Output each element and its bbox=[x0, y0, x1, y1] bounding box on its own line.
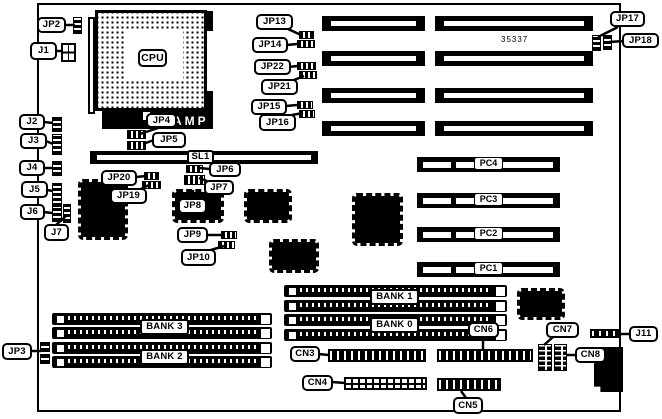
chip-lower-mid bbox=[269, 239, 319, 273]
jp9-jumper bbox=[221, 231, 237, 239]
part-number-text: 35337 bbox=[501, 35, 528, 44]
motherboard-diagram: CPU AMP 35337 PC4 PC3 PC2 bbox=[0, 0, 662, 419]
label-j3: J3 bbox=[20, 133, 47, 149]
label-j6: J6 bbox=[20, 204, 45, 220]
chip-near-bank1 bbox=[517, 288, 565, 320]
label-jp8: JP8 bbox=[178, 198, 207, 214]
cn7-connector bbox=[538, 344, 552, 371]
label-jp13: JP13 bbox=[256, 14, 293, 30]
label-cn4: CN4 bbox=[302, 375, 333, 391]
label-jp15: JP15 bbox=[251, 99, 287, 115]
label-bank2: BANK 2 bbox=[140, 349, 189, 365]
label-bank3: BANK 3 bbox=[140, 319, 189, 335]
cpu-label: CPU bbox=[138, 49, 167, 67]
jp2-jumper bbox=[73, 17, 82, 34]
label-bank1: BANK 1 bbox=[370, 289, 419, 305]
pci-slot-pc4: PC4 bbox=[417, 157, 560, 172]
jp3-jumper-a bbox=[40, 342, 50, 352]
label-jp20: JP20 bbox=[101, 170, 137, 186]
label-jp10: JP10 bbox=[181, 249, 216, 266]
jp10-jumper bbox=[218, 241, 235, 249]
label-jp22: JP22 bbox=[254, 59, 291, 75]
pc3-label: PC3 bbox=[474, 193, 503, 206]
j1-connector bbox=[61, 43, 76, 62]
label-jp21: JP21 bbox=[261, 79, 298, 95]
jp14-jumper bbox=[297, 40, 315, 48]
j6-connector bbox=[52, 206, 62, 222]
cpu-socket-tab-bottom bbox=[205, 91, 213, 111]
isa-slot-2-right bbox=[435, 51, 593, 66]
isa-slot-4-right bbox=[435, 121, 593, 136]
label-jp3: JP3 bbox=[2, 343, 32, 360]
cn3-connector bbox=[328, 349, 426, 362]
label-cn8: CN8 bbox=[575, 347, 606, 363]
isa-slot-1-right bbox=[435, 16, 593, 31]
j2-connector bbox=[52, 117, 62, 132]
cn4-connector bbox=[344, 377, 427, 390]
jp6-jumper bbox=[186, 165, 203, 173]
chipset-large bbox=[352, 193, 403, 246]
label-jp17: JP17 bbox=[610, 11, 645, 27]
jp15-jumper bbox=[297, 101, 313, 109]
label-jp6: JP6 bbox=[209, 162, 241, 177]
jp19-jumper bbox=[142, 181, 161, 189]
pci-slot-pc1: PC1 bbox=[417, 262, 560, 277]
isa-slot-2-left bbox=[322, 51, 425, 66]
isa-slot-3-left bbox=[322, 88, 425, 103]
label-cn6: CN6 bbox=[468, 322, 499, 338]
label-j7: J7 bbox=[44, 224, 69, 241]
pc2-label: PC2 bbox=[474, 227, 503, 240]
jp21-jumper bbox=[299, 71, 317, 79]
label-j11: J11 bbox=[629, 326, 658, 342]
cn6-connector bbox=[437, 349, 533, 362]
jp16-jumper bbox=[299, 110, 315, 118]
j11-connector bbox=[590, 329, 619, 338]
pc4-label: PC4 bbox=[474, 157, 503, 170]
chip-mid-right bbox=[244, 189, 292, 223]
isa-slot-4-left bbox=[322, 121, 425, 136]
cpu-socket-side-strip bbox=[88, 17, 95, 114]
label-jp5: JP5 bbox=[152, 132, 186, 148]
j3-connector bbox=[52, 134, 62, 155]
j5-connector bbox=[52, 183, 62, 207]
jp18-jumper bbox=[603, 35, 612, 50]
isa-slot-3-right bbox=[435, 88, 593, 103]
label-j2: J2 bbox=[19, 114, 45, 130]
j7-connector bbox=[63, 204, 71, 223]
label-cn5: CN5 bbox=[453, 397, 483, 414]
label-bank0: BANK 0 bbox=[370, 317, 419, 333]
label-jp16: JP16 bbox=[259, 114, 296, 131]
label-j4: J4 bbox=[19, 160, 45, 176]
label-j1: J1 bbox=[30, 42, 57, 60]
jp5-jumper bbox=[127, 141, 146, 150]
label-jp9: JP9 bbox=[177, 227, 208, 243]
label-j5: J5 bbox=[21, 181, 48, 198]
label-jp7: JP7 bbox=[204, 180, 234, 195]
pci-slot-pc2: PC2 bbox=[417, 227, 560, 242]
isa-slot-1-left bbox=[322, 16, 425, 31]
pc1-label: PC1 bbox=[474, 262, 503, 275]
label-jp2: JP2 bbox=[37, 17, 66, 33]
label-jp18: JP18 bbox=[622, 33, 659, 48]
amp-text: AMP bbox=[173, 115, 209, 127]
jp3-jumper-b bbox=[40, 354, 50, 364]
label-sl1: SL1 bbox=[187, 150, 214, 164]
cpu-socket-tab-top bbox=[205, 11, 213, 31]
label-jp14: JP14 bbox=[252, 37, 288, 53]
jp7-jumper bbox=[184, 175, 205, 185]
jp22-jumper bbox=[297, 62, 316, 70]
label-jp19: JP19 bbox=[110, 188, 147, 204]
cn5-connector bbox=[437, 378, 501, 391]
jp13-jumper bbox=[299, 31, 314, 39]
label-jp4: JP4 bbox=[146, 113, 177, 128]
j4-connector bbox=[52, 161, 62, 176]
label-cn7: CN7 bbox=[546, 322, 579, 338]
pci-slot-pc3: PC3 bbox=[417, 193, 560, 208]
label-cn3: CN3 bbox=[290, 346, 320, 362]
jp20-jumper bbox=[144, 172, 159, 180]
jp17-jumper bbox=[592, 35, 601, 51]
jp4-jumper bbox=[127, 130, 146, 139]
cn8-connector bbox=[554, 344, 567, 371]
